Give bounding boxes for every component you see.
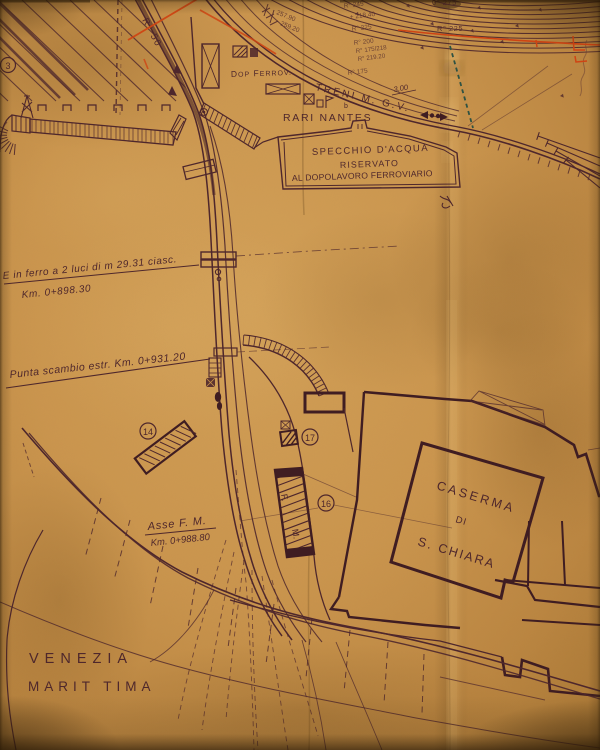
svg-text:b: b: [344, 103, 348, 110]
svg-text:RARI NANTES: RARI NANTES: [283, 112, 372, 124]
svg-text:17: 17: [305, 433, 315, 443]
svg-text:14: 14: [143, 427, 153, 437]
svg-text:16: 16: [321, 499, 331, 509]
svg-text:R° 225: R° 225: [437, 24, 463, 33]
svg-text:M.: M.: [290, 528, 302, 540]
svg-text:MARIT TIMA: MARIT TIMA: [28, 679, 156, 694]
svg-text:VENEZIA: VENEZIA: [29, 651, 133, 667]
svg-text:RISERVATO: RISERVATO: [340, 158, 399, 170]
